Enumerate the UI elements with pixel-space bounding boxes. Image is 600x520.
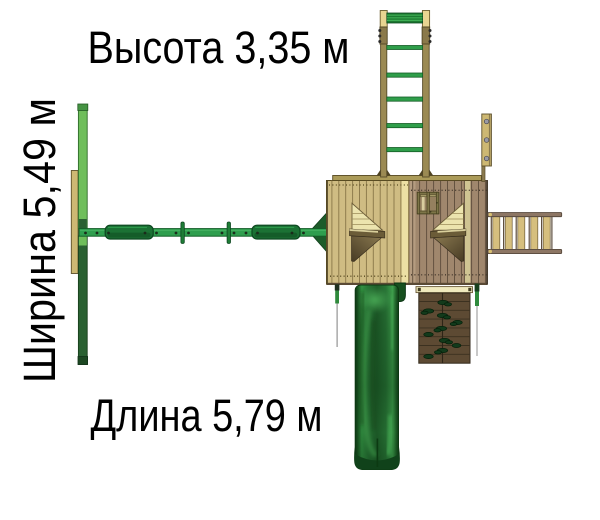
svg-text:Высота 3,35 м: Высота 3,35 м [88, 22, 350, 73]
svg-text:Ширина 5,49 м: Ширина 5,49 м [14, 98, 65, 383]
svg-text:Длина 5,79 м: Длина 5,79 м [91, 390, 323, 441]
